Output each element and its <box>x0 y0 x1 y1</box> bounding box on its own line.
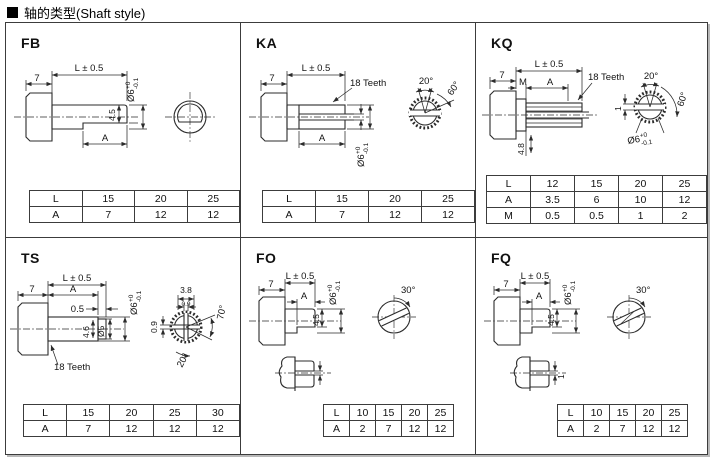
svg-text:-0.1: -0.1 <box>136 290 143 302</box>
angle-label: 20° <box>644 71 659 82</box>
table-cell: 7 <box>82 207 135 223</box>
ts-drawing: L ± 0.5 7 A 0.5 18 Teeth 4.6 Ø5 Ø6 +0 -0… <box>6 269 239 404</box>
table-cell: A <box>30 207 83 223</box>
table-cell: 12 <box>663 192 707 208</box>
panel-ka: KA L ± 0.5 7 18 Teeth A <box>241 23 476 238</box>
dim-label: 7 <box>268 279 273 290</box>
panel-title: KA <box>256 35 475 52</box>
angle-label: 20° <box>419 76 434 87</box>
angle-label: 20° <box>175 351 192 369</box>
table-cell: 12 <box>187 207 240 223</box>
fb-side-view <box>165 92 215 142</box>
dim-label: 0.9 <box>181 301 190 308</box>
table-cell: 15 <box>67 405 110 421</box>
svg-text:60°: 60° <box>445 79 462 97</box>
kq-main-view: L ± 0.5 7 M A 18 Teeth 4.8 <box>482 59 624 156</box>
svg-text:4.5: 4.5 <box>311 314 321 326</box>
table-cell: 12 <box>402 421 428 437</box>
table-cell: 0.5 <box>531 208 575 224</box>
ka-drawing: L ± 0.5 7 18 Teeth A Ø6 +0 -0.1 20 <box>241 55 474 175</box>
angle-label: 30° <box>401 285 416 296</box>
svg-text:70°: 70° <box>215 304 229 321</box>
table-cell: 12 <box>428 421 454 437</box>
table-cell: 12 <box>153 421 196 437</box>
svg-text:4.5: 4.5 <box>107 109 117 121</box>
table-cell: 25 <box>428 405 454 421</box>
svg-text:4.5: 4.5 <box>546 314 556 326</box>
dim-label: L ± 0.5 <box>286 271 315 282</box>
teeth-label: 18 Teeth <box>54 362 90 373</box>
panel-ts: TS L ± 0.5 7 A 0.5 18 <box>6 238 241 454</box>
table-row: A71212 <box>30 207 240 223</box>
dim-label: 4.5 <box>546 314 556 326</box>
page-title: 轴的类型(Shaft style) <box>24 3 145 22</box>
angle-label: 70° <box>215 304 229 321</box>
svg-text:+0: +0 <box>128 294 135 302</box>
table-row: L15202530 <box>24 405 240 421</box>
table-cell: 20 <box>110 405 153 421</box>
dim-label: 1 <box>556 374 566 379</box>
table-cell: 2 <box>350 421 376 437</box>
table-cell: 25 <box>153 405 196 421</box>
dim-label: 0.5 <box>71 304 84 315</box>
table-cell: 3.5 <box>531 192 575 208</box>
dim-label: 3.8 <box>180 285 192 295</box>
table-cell: L <box>324 405 350 421</box>
dim-label: A <box>547 77 554 88</box>
fo-main-view: L ± 0.5 7 A 4.5 Ø6 +0 -0.1 <box>249 271 345 345</box>
dim-label: L ± 0.5 <box>521 271 550 282</box>
dim-label: M <box>519 77 527 88</box>
dia-label: Ø5 <box>96 325 106 337</box>
page-header: 轴的类型(Shaft style) <box>7 3 145 22</box>
panel-title: FB <box>21 35 240 52</box>
table-cell: 10 <box>584 405 610 421</box>
table-cell: 20 <box>402 405 428 421</box>
panel-fb: FB L ± 0.5 7 A Ø6 +0 -0.1 <box>6 23 241 238</box>
fq-main-view: L ± 0.5 7 A 4.5 Ø6 +0 -0.1 <box>484 271 580 345</box>
table-cell: 7 <box>67 421 110 437</box>
svg-text:4.8: 4.8 <box>516 143 526 155</box>
angle-label: 60° <box>675 91 690 108</box>
ts-side-view: 3.8 0.9 0.9 70° 20° <box>149 285 229 369</box>
dim-label: A <box>70 284 77 295</box>
table-cell: 7 <box>610 421 636 437</box>
svg-text:Ø6: Ø6 <box>126 89 137 102</box>
table-row: M0.50.512 <box>487 208 707 224</box>
dim-label: A <box>301 291 308 302</box>
svg-text:+0: +0 <box>327 284 334 292</box>
svg-text:20°: 20° <box>175 351 192 369</box>
kq-side-view: 1 20° 60° Ø6 +0 -0.1 <box>613 71 690 150</box>
table-row: A3.561012 <box>487 192 707 208</box>
table-cell: 7 <box>316 207 369 223</box>
fb-drawing: L ± 0.5 7 A Ø6 +0 -0.1 4.5 <box>6 55 239 175</box>
table-cell: 15 <box>376 405 402 421</box>
table-cell: 12 <box>110 421 153 437</box>
table-cell: 25 <box>663 176 707 192</box>
kq-dim-table: L12152025 A3.561012 M0.50.512 <box>486 175 707 224</box>
table-cell: 25 <box>187 191 240 207</box>
svg-text:Ø6: Ø6 <box>328 292 339 305</box>
fq-side-view: 30° <box>607 285 651 339</box>
table-cell: A <box>263 207 316 223</box>
panel-fo: FO L ± 0.5 7 A 4.5 Ø6 <box>241 238 476 454</box>
table-row: A7121212 <box>24 421 240 437</box>
fq-profile-view: 1 <box>510 357 566 391</box>
table-cell: 7 <box>376 421 402 437</box>
table-cell: 2 <box>584 421 610 437</box>
table-row: L152025 <box>30 191 240 207</box>
table-cell: 12 <box>531 176 575 192</box>
svg-text:-0.1: -0.1 <box>570 280 577 292</box>
table-cell: 15 <box>316 191 369 207</box>
fo-dim-table: L10152025 A271212 <box>323 404 454 437</box>
svg-text:1: 1 <box>613 106 623 111</box>
svg-text:60°: 60° <box>675 91 690 108</box>
table-cell: 20 <box>619 176 663 192</box>
table-cell: L <box>24 405 67 421</box>
table-cell: 2 <box>663 208 707 224</box>
table-cell: L <box>30 191 83 207</box>
svg-text:+0: +0 <box>355 146 362 154</box>
ts-dim-table: L15202530 A7121212 <box>23 404 240 437</box>
table-cell: A <box>558 421 584 437</box>
table-cell: 1 <box>619 208 663 224</box>
dim-label: 4.6 <box>81 326 91 338</box>
table-cell: L <box>263 191 316 207</box>
dia-label: Ø6 +0 -0.1 <box>355 142 370 167</box>
table-cell: 30 <box>196 405 239 421</box>
svg-text:Ø6: Ø6 <box>129 302 140 315</box>
svg-text:Ø5: Ø5 <box>96 325 106 337</box>
panel-fq: FQ L ± 0.5 7 A 4.5 Ø6 <box>476 238 707 454</box>
panel-title: FO <box>256 250 475 266</box>
table-cell: 6 <box>575 192 619 208</box>
svg-text:+0: +0 <box>125 81 132 89</box>
dim-label: A <box>536 291 543 302</box>
dim-label: A <box>102 133 109 144</box>
table-cell: 10 <box>350 405 376 421</box>
table-cell: 25 <box>422 191 475 207</box>
fo-side-view: 30° <box>372 285 416 339</box>
dia-label: Ø6 +0 -0.1 <box>327 280 342 305</box>
table-cell: 12 <box>636 421 662 437</box>
dim-label: L ± 0.5 <box>535 59 564 70</box>
table-cell: 12 <box>662 421 688 437</box>
table-cell: 15 <box>82 191 135 207</box>
table-cell: 0.5 <box>575 208 619 224</box>
table-cell: A <box>324 421 350 437</box>
table-row: L12152025 <box>487 176 707 192</box>
table-cell: 15 <box>575 176 619 192</box>
svg-text:0.9: 0.9 <box>149 321 159 333</box>
dia-label: Ø6 +0 -0.1 <box>626 131 653 150</box>
ka-side-view: 20° 60° <box>409 76 463 128</box>
dim-label: 4.8 <box>516 143 526 155</box>
table-row: L152025 <box>263 191 475 207</box>
table-row: L10152025 <box>324 405 454 421</box>
dim-label: 7 <box>269 73 274 84</box>
dim-label: L ± 0.5 <box>302 63 331 74</box>
dia-label: Ø6 +0 -0.1 <box>128 290 143 315</box>
dim-label: 7 <box>503 279 508 290</box>
fq-drawing: L ± 0.5 7 A 4.5 Ø6 +0 -0.1 <box>476 269 707 404</box>
dia-label: Ø6 +0 -0.1 <box>562 280 577 305</box>
fq-dim-table: L10152025 A271212 <box>557 404 688 437</box>
table-row: A271212 <box>558 421 688 437</box>
table-row: A71212 <box>263 207 475 223</box>
table-cell: 10 <box>619 192 663 208</box>
teeth-label: 18 Teeth <box>588 72 624 83</box>
dim-label: 0.9 <box>149 321 159 333</box>
table-cell: 20 <box>135 191 188 207</box>
angle-label: 60° <box>445 79 462 97</box>
dim-label: 7 <box>499 70 504 81</box>
svg-text:-0.1: -0.1 <box>641 139 654 148</box>
shaft-style-grid: FB L ± 0.5 7 A Ø6 +0 -0.1 <box>5 22 708 455</box>
table-cell: L <box>558 405 584 421</box>
svg-text:Ø6: Ø6 <box>356 154 367 167</box>
dim-label: 4.5 <box>107 109 117 121</box>
table-cell: 12 <box>369 207 422 223</box>
kq-drawing: L ± 0.5 7 M A 18 Teeth 4.8 1 <box>476 55 707 169</box>
dim-label: L ± 0.5 <box>75 63 104 74</box>
table-cell: 20 <box>636 405 662 421</box>
svg-text:+0: +0 <box>639 132 648 140</box>
svg-text:Ø6: Ø6 <box>563 292 574 305</box>
table-cell: L <box>487 176 531 192</box>
dim-label: 7 <box>34 73 39 84</box>
table-cell: 25 <box>662 405 688 421</box>
table-cell: 15 <box>610 405 636 421</box>
svg-text:1: 1 <box>556 374 566 379</box>
ka-dim-table: L152025 A71212 <box>262 190 475 223</box>
table-cell: M <box>487 208 531 224</box>
panel-kq: KQ L ± 0.5 7 M A 18 Te <box>476 23 707 238</box>
section-marker-icon <box>7 7 18 18</box>
table-row: L10152025 <box>558 405 688 421</box>
dim-label: 1 <box>613 106 623 111</box>
table-cell: 12 <box>135 207 188 223</box>
svg-text:+0: +0 <box>562 284 569 292</box>
fo-drawing: L ± 0.5 7 A 4.5 Ø6 +0 -0.1 <box>241 269 474 404</box>
table-cell: 20 <box>369 191 422 207</box>
svg-text:4.6: 4.6 <box>81 326 91 338</box>
table-cell: 12 <box>422 207 475 223</box>
svg-text:-0.1: -0.1 <box>363 142 370 154</box>
dim-label: L ± 0.5 <box>63 273 92 284</box>
table-row: A271212 <box>324 421 454 437</box>
teeth-label: 18 Teeth <box>350 78 386 89</box>
ts-main-view: L ± 0.5 7 A 0.5 18 Teeth 4.6 Ø5 Ø6 +0 -0… <box>10 273 143 373</box>
table-cell: A <box>24 421 67 437</box>
fo-profile-view <box>275 357 331 391</box>
dim-label: 4.5 <box>311 314 321 326</box>
table-cell: A <box>487 192 531 208</box>
table-cell: 12 <box>196 421 239 437</box>
angle-label: 30° <box>636 285 651 296</box>
panel-title: KQ <box>491 35 707 52</box>
svg-text:-0.1: -0.1 <box>335 280 342 292</box>
panel-title: TS <box>21 250 240 266</box>
dim-label: 7 <box>29 284 34 295</box>
panel-title: FQ <box>491 250 707 266</box>
fb-dim-table: L152025 A71212 <box>29 190 240 223</box>
svg-text:-0.1: -0.1 <box>133 77 140 89</box>
ka-main-view: L ± 0.5 7 18 Teeth A Ø6 +0 -0.1 <box>249 63 386 167</box>
dim-label: A <box>319 133 326 144</box>
fb-main-view: L ± 0.5 7 A Ø6 +0 -0.1 4.5 <box>14 63 147 148</box>
